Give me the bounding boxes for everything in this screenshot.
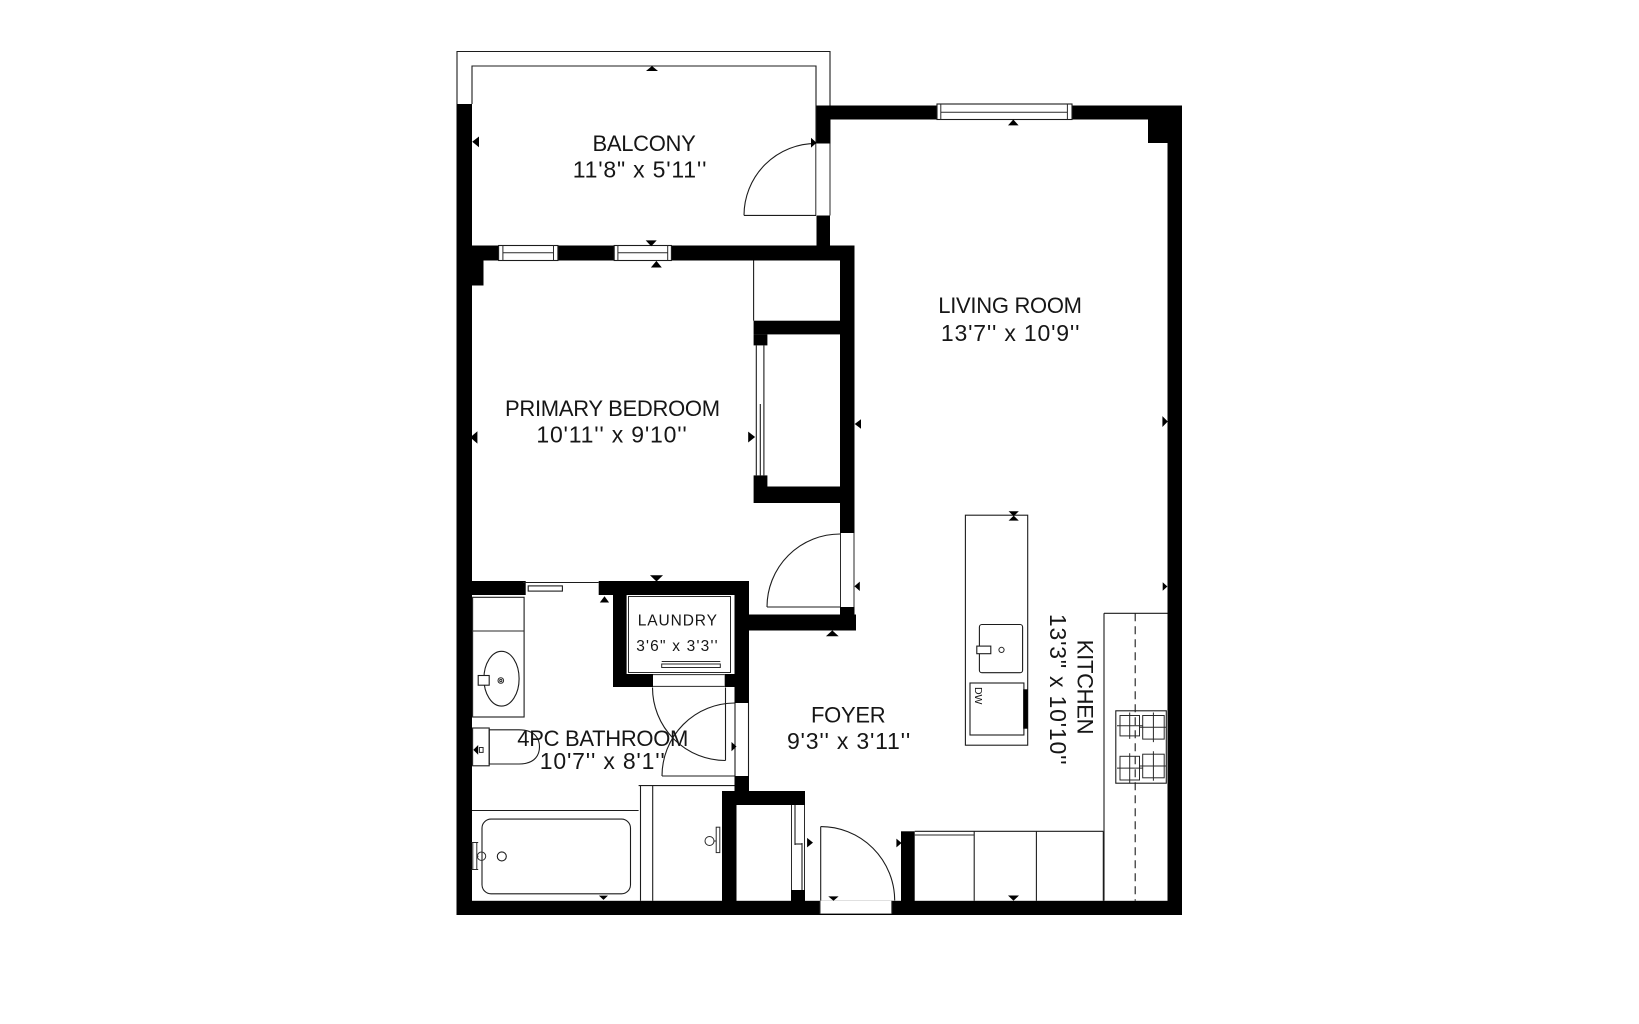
svg-text:9'3'' x 3'11'': 9'3'' x 3'11'' <box>787 728 911 754</box>
svg-text:KITCHEN: KITCHEN <box>1072 640 1097 734</box>
svg-text:LIVING ROOM: LIVING ROOM <box>938 293 1081 318</box>
svg-text:DW: DW <box>972 687 984 705</box>
svg-text:FOYER: FOYER <box>811 703 885 728</box>
svg-text:3'6" x 3'3'': 3'6" x 3'3'' <box>636 638 719 655</box>
svg-text:13'3" x 10'10'': 13'3" x 10'10'' <box>1045 614 1071 766</box>
svg-text:10'7'' x 8'1'': 10'7'' x 8'1'' <box>540 748 666 774</box>
svg-text:PRIMARY BEDROOM: PRIMARY BEDROOM <box>505 396 720 421</box>
svg-text:11'8" x 5'11'': 11'8" x 5'11'' <box>573 157 708 183</box>
svg-text:13'7'' x 10'9'': 13'7'' x 10'9'' <box>941 320 1080 346</box>
svg-text:10'11'' x 9'10'': 10'11'' x 9'10'' <box>536 422 687 448</box>
svg-text:LAUNDRY: LAUNDRY <box>638 612 718 629</box>
svg-text:BALCONY: BALCONY <box>592 131 696 156</box>
